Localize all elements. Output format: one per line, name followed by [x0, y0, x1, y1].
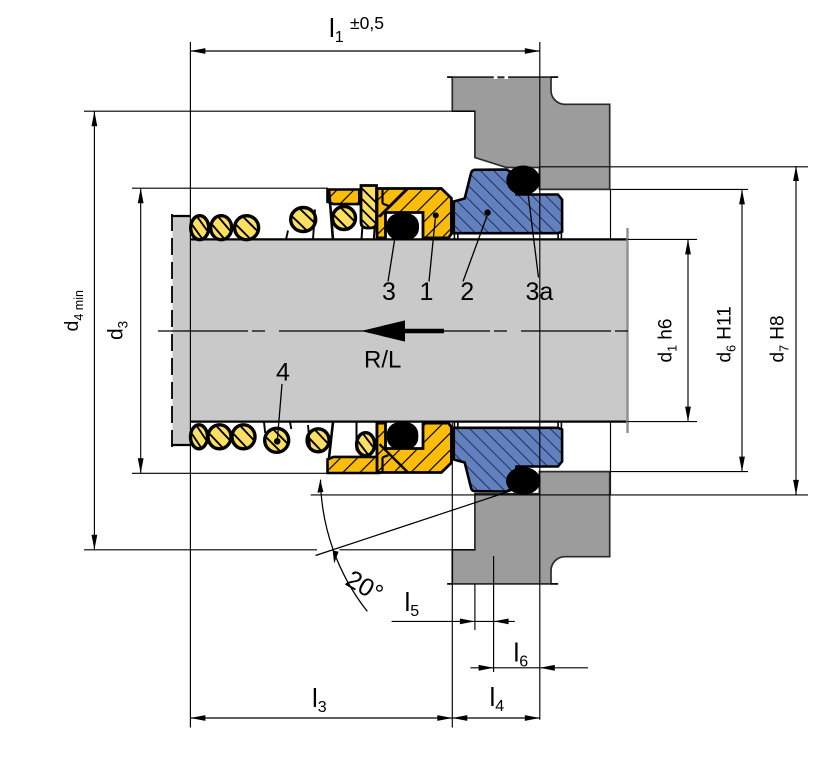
- svg-text:2: 2: [460, 278, 474, 306]
- svg-text:d1 h6: d1 h6: [656, 319, 680, 363]
- svg-text:±0,5: ±0,5: [350, 13, 384, 33]
- svg-text:d7 H8: d7 H8: [768, 315, 792, 362]
- svg-text:3: 3: [382, 278, 396, 306]
- svg-text:1: 1: [420, 278, 434, 306]
- svg-text:3a: 3a: [526, 278, 554, 306]
- svg-text:d6 H11: d6 H11: [715, 306, 739, 362]
- svg-text:4: 4: [276, 359, 290, 387]
- svg-text:R/L: R/L: [364, 347, 401, 374]
